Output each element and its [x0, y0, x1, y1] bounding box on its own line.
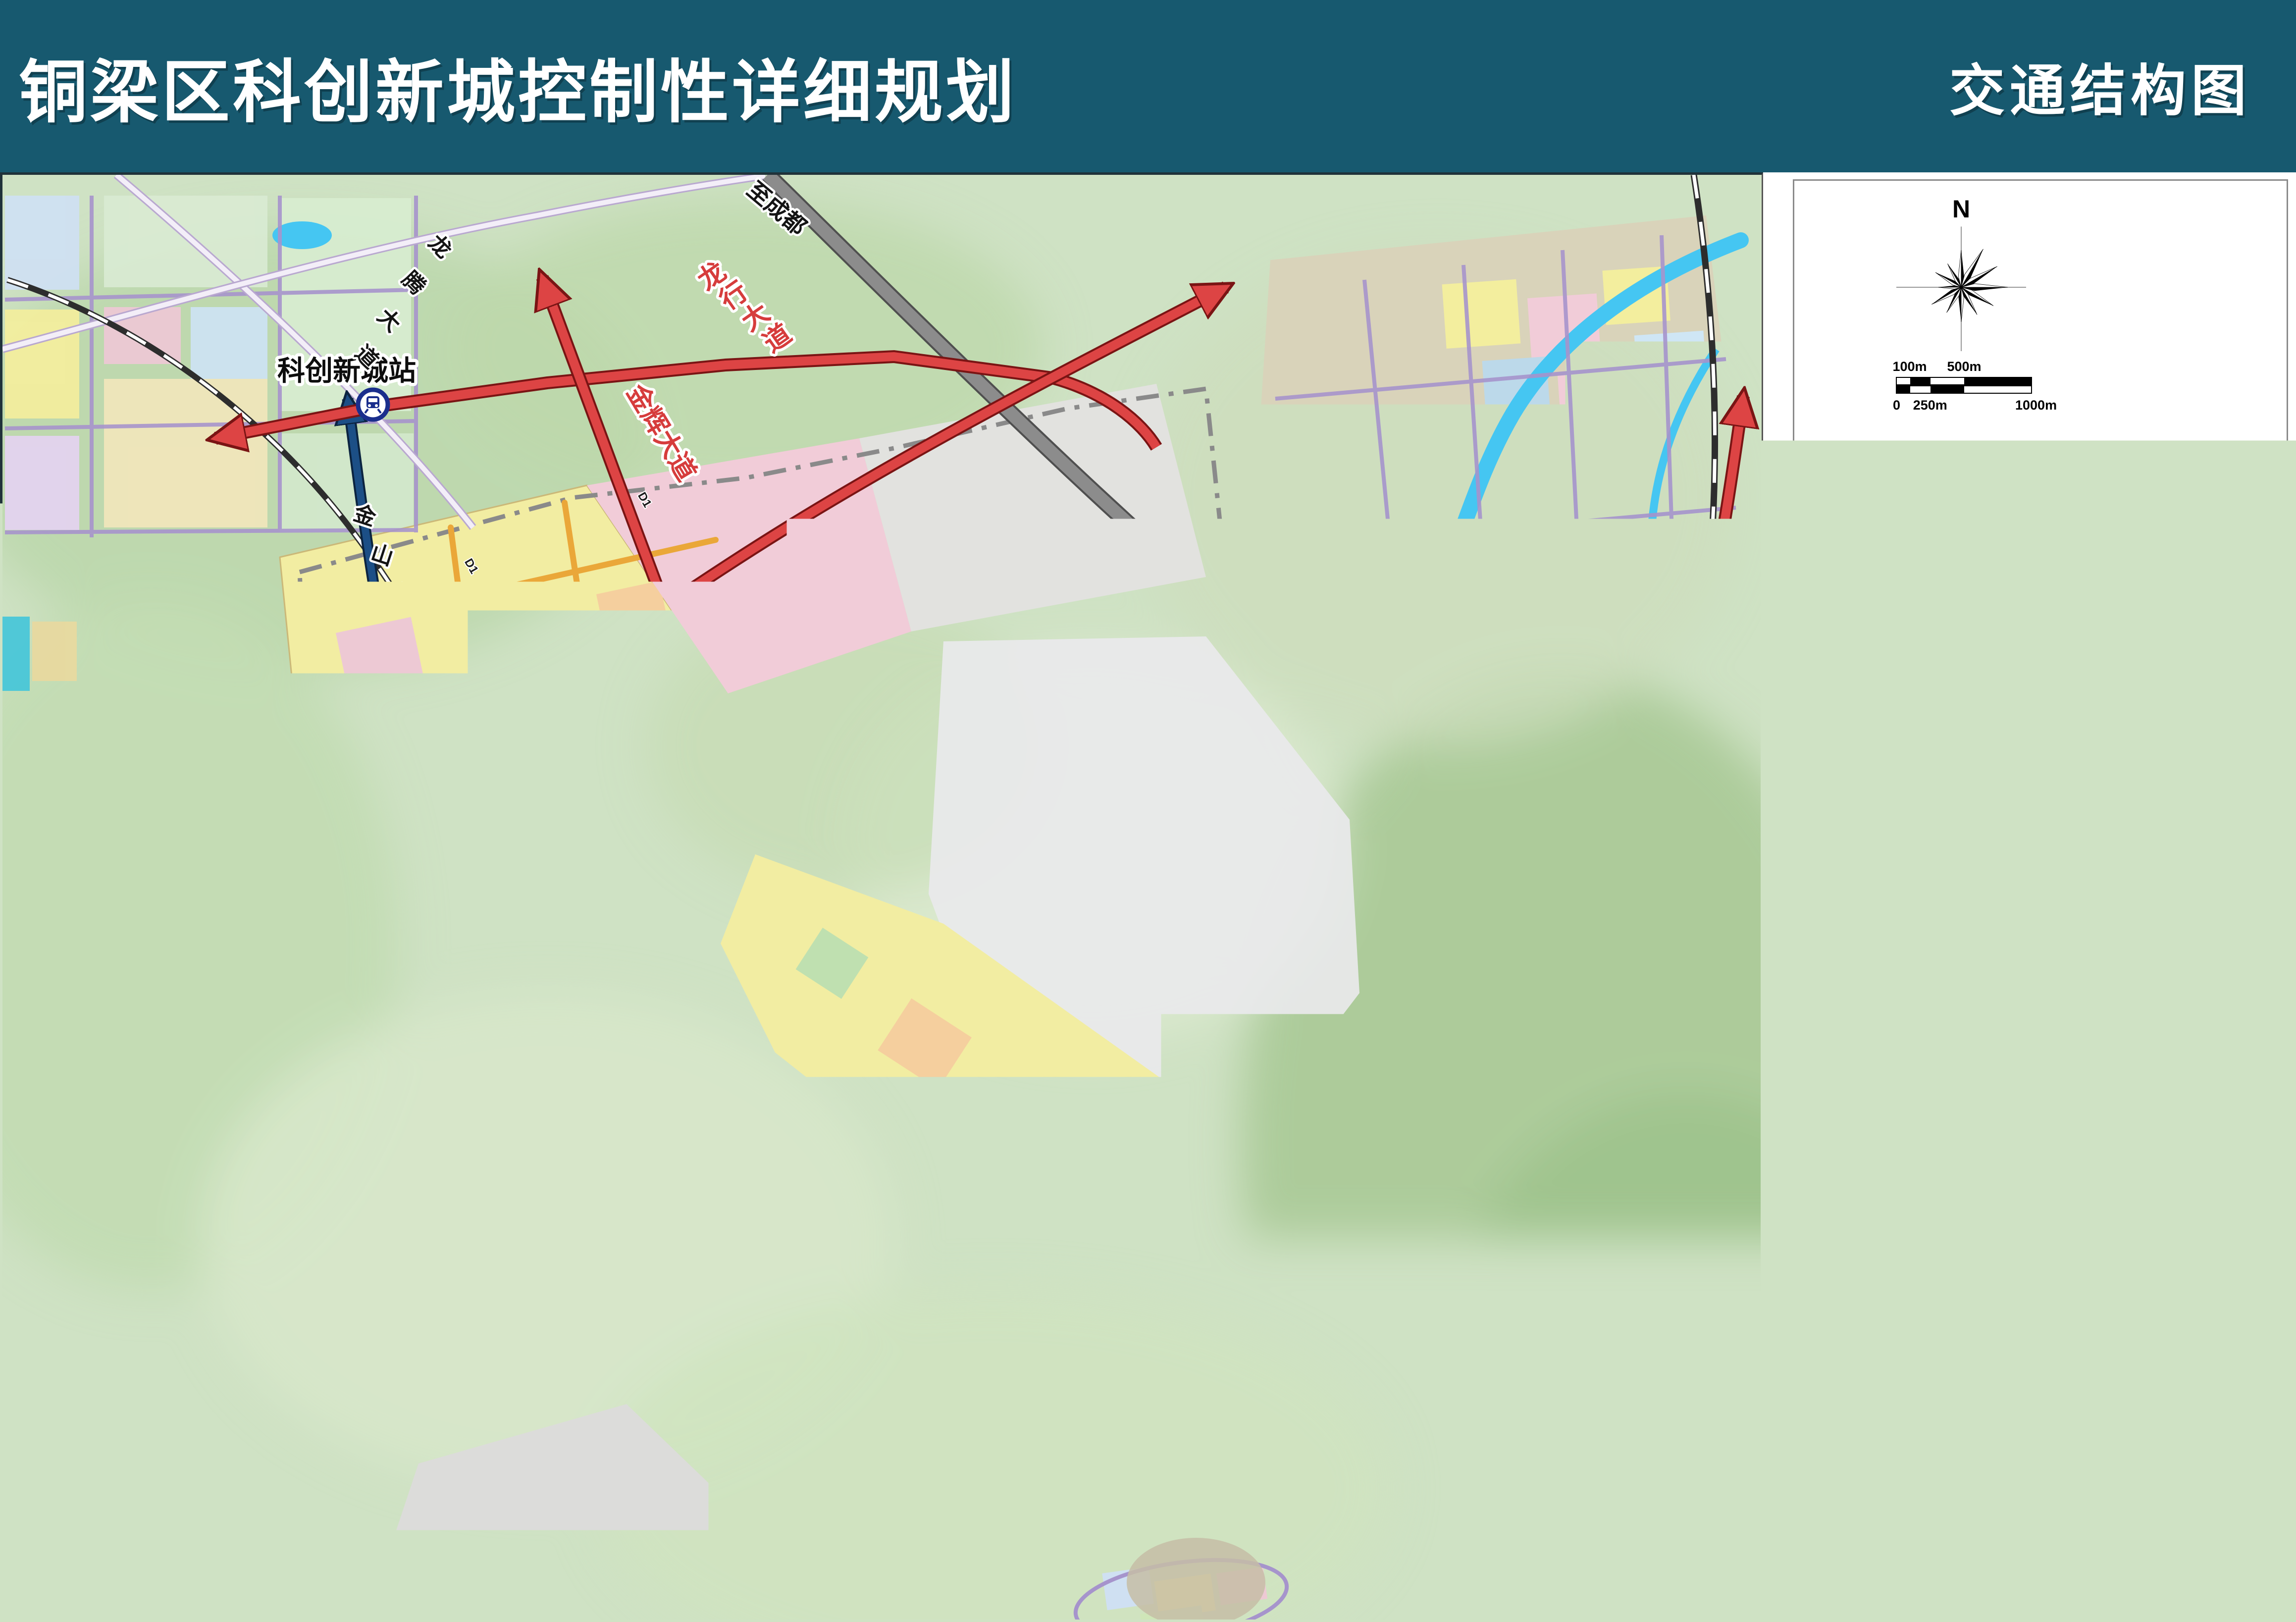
metro-station-icon[interactable] [1216, 1315, 1246, 1345]
compass-box: N 100m500m0250m1000m [1793, 179, 2288, 566]
scale-bar-row [1896, 385, 2032, 394]
legend-swatch-line-red [1792, 747, 1838, 771]
svg-text:18: 18 [2024, 1335, 2034, 1345]
map-label-char: 道 [1538, 710, 1560, 734]
header-bar: 铜梁区科创新城控制性详细规划 交通结构图 [0, 0, 2296, 172]
legend-item: 支路 [1792, 784, 1933, 819]
svg-text:15: 15 [1863, 1323, 1873, 1333]
map-label: 至安岳 [60, 1079, 138, 1108]
svg-text:28: 28 [2137, 964, 2150, 978]
map-label: 同康湖 [662, 1355, 754, 1383]
svg-text:3: 3 [1975, 1323, 1980, 1333]
scale-bar: 100m500m0250m1000m [1896, 359, 2044, 423]
map-label: 石鱼场镇 [81, 1549, 200, 1575]
svg-text:10: 10 [2186, 1323, 2195, 1333]
cross-section-D1-D1: 4.5234.532D1-D1道路横断面 [2025, 1045, 2262, 1168]
legend-item: 规划范围 [1792, 699, 1933, 733]
cross-section-D2-D2: 816832D2-D2道路横断面 [1787, 1168, 2025, 1292]
cross-sections: 道路横断面 13.52313.550A-A道路横断面628640B-B道路横断面… [1787, 861, 2287, 1411]
cross-section-F2-F2: 410418F2-F2道路横断面 [2110, 1292, 2271, 1411]
svg-text:32: 32 [2137, 1104, 2150, 1118]
map-label-char: 机 [198, 1493, 223, 1520]
svg-text:50: 50 [1899, 980, 1913, 994]
map-label: 大学园站 [1180, 1393, 1291, 1424]
svg-text:3: 3 [2078, 1323, 2083, 1333]
map-label-char: 线 [1543, 1065, 1564, 1089]
map-label-char: 高 [858, 639, 890, 675]
map-label-char: 铜 [739, 756, 771, 792]
svg-text:40: 40 [2137, 980, 2150, 994]
svg-text:3: 3 [2064, 1212, 2071, 1226]
map-label-char: 大 [1536, 684, 1558, 709]
map-label-char: 第 [192, 1436, 217, 1463]
legend-swatch-line-gray [1933, 704, 1980, 728]
svg-text:23: 23 [1899, 1088, 1913, 1102]
map-label-char: 山 [1533, 659, 1555, 683]
svg-text:18: 18 [2137, 1212, 2150, 1226]
svg-text:4.5: 4.5 [2209, 1088, 2227, 1102]
legend-label: 次干路 [1988, 741, 2059, 776]
cross-section-name: D2-D2道路横断面 [1787, 1259, 2025, 1285]
page-title: 铜梁区科创新城控制性详细规划 [19, 37, 1017, 136]
map-label-char: 环 [1577, 1021, 1598, 1044]
page-subtitle: 交通结构图 [1949, 46, 2251, 126]
map-label-char: 铁 [1693, 810, 1714, 833]
svg-text:13.5: 13.5 [1830, 964, 1855, 978]
map-label: 庆隆场镇 [1061, 1378, 1184, 1406]
map-label-char: 高 [115, 1465, 140, 1492]
scale-label: 250m [1913, 398, 1947, 413]
svg-text:24: 24 [2137, 1228, 2150, 1242]
scale-bar-row [1896, 377, 2032, 385]
svg-text:13.5: 13.5 [1957, 964, 1981, 978]
svg-text:16: 16 [1899, 1212, 1913, 1226]
legend-item: 高速公路 [1933, 699, 2075, 733]
legend-label: 规划范围 [1846, 699, 1941, 733]
map-label-char: 龙 [1531, 633, 1553, 657]
map-label-char: 遂 [1285, 790, 1321, 829]
map-label: 顺安爆破企业 [1123, 1591, 1289, 1617]
legend-item: A-A断面符号 [1933, 784, 2075, 819]
scale-label: 100m [1893, 359, 1927, 374]
map-label-char: 速 [918, 581, 949, 617]
legend-item: 主干路 [1792, 741, 1933, 776]
cross-section-name: E1-E1道路横断面 [2025, 1259, 2262, 1285]
map-canvas[interactable]: 至成都金辉大道科创新城站黎家沟水库金川大道至安岳金岳大道成渝中线高铁（渝遂绵高铁… [0, 172, 1763, 1622]
map-label-char: 二 [1612, 976, 1632, 999]
scale-label: 0 [1893, 398, 1900, 413]
map-label-char: 铜 [119, 1408, 144, 1435]
cross-section-name: C-C道路横断面 [1787, 1136, 2025, 1161]
legend-label: 支路 [1846, 784, 1894, 819]
north-label: N [1894, 195, 2028, 223]
map-label-char: 安 [799, 698, 831, 733]
map-label-char: 至 [189, 1407, 214, 1434]
map-label-char: 渝 [1268, 697, 1304, 736]
cross-section-A-A: 13.52313.550A-A道路横断面 [1787, 921, 2025, 1045]
legend-label: 断面符号 [1988, 784, 2083, 819]
legend-swatch-section-symbol: A-A [1933, 789, 1980, 813]
svg-text:4.5: 4.5 [1811, 1323, 1824, 1333]
map-label-char: 路 [1682, 848, 1703, 872]
planning-map[interactable]: 至成都金辉大道科创新城站黎家沟水库金川大道至安岳金岳大道成渝中线高铁（渝遂绵高铁… [2, 175, 1761, 1620]
cross-section-name: A-A道路横断面 [1787, 1012, 2025, 1038]
legend-label: 高速公路 [1988, 699, 2083, 733]
svg-text:32: 32 [1899, 1228, 1913, 1242]
scale-label: 1000m [2015, 398, 2057, 413]
legend-item: 次干路 [1933, 741, 2075, 776]
svg-text:36: 36 [1899, 1104, 1913, 1118]
legend-swatch-line-orange [1792, 789, 1838, 813]
svg-text:4: 4 [2236, 1323, 2241, 1333]
legend-swatch-dash-red [1792, 704, 1838, 728]
road-section-tag: F2 [963, 1074, 979, 1090]
map-label: 青 [1649, 1478, 1694, 1529]
svg-text:6: 6 [2066, 964, 2073, 978]
cross-section-E2-E2: 4.5154.524E2-E2道路横断面 [1787, 1292, 1948, 1411]
map-label-char: 速 [1318, 974, 1355, 1013]
cross-section-C-C: 6.5236.536C-C道路横断面 [1787, 1045, 2025, 1168]
svg-text:4: 4 [2140, 1323, 2145, 1333]
metro-station-icon[interactable] [358, 390, 388, 419]
cross-section-F1-F1: 312318F1-F1道路横断面 [1948, 1292, 2110, 1411]
cross-section-name: E2-E2道路横断面 [1787, 1357, 1948, 1378]
legend-title: 图 例 [1792, 608, 2089, 658]
svg-text:24: 24 [1863, 1335, 1873, 1345]
svg-text:6.5: 6.5 [1826, 1088, 1843, 1102]
map-label-char: 域 [1701, 771, 1722, 794]
svg-text:6: 6 [2214, 964, 2221, 978]
map-label-char: 场 [201, 1522, 226, 1549]
svg-text:23: 23 [1899, 964, 1913, 978]
map-label-char: 西 [1668, 887, 1689, 910]
cross-section-name: F1-F1道路横断面 [1948, 1357, 2110, 1378]
cross-sections-title: 道路横断面 [1787, 861, 2287, 901]
highway-exit-marker [1445, 759, 1467, 781]
cross-section-name: D1-D1道路横断面 [2025, 1136, 2262, 1161]
svg-text:12: 12 [2024, 1323, 2034, 1333]
compass-rose-icon [1894, 220, 2028, 354]
map-label: 山 [1452, 1541, 1497, 1591]
svg-text:3: 3 [2216, 1212, 2223, 1226]
map-label-char: 速 [113, 1493, 138, 1520]
legend: 图 例 规划范围主干路支路高速公路次干路A-A断面符号 [1792, 608, 2089, 823]
page: 铜梁区科创新城控制性详细规划 交通结构图 [0, 0, 2296, 1622]
map-label: 铜梁高铁站 [473, 1436, 612, 1467]
svg-text:18: 18 [2186, 1335, 2195, 1345]
cross-section-B-B: 628640B-B道路横断面 [2025, 921, 2262, 1045]
scale-label: 500m [1947, 359, 1982, 374]
legend-label: 主干路 [1846, 741, 1918, 776]
svg-text:6.5: 6.5 [1968, 1088, 1985, 1102]
map-label-char: 兴 [117, 1436, 142, 1464]
legend-swatch-line-blue [1933, 747, 1980, 771]
svg-text:23: 23 [2137, 1088, 2150, 1102]
svg-text:8: 8 [1967, 1212, 1974, 1226]
cross-section-name: F2-F2道路横断面 [2110, 1357, 2271, 1378]
cross-section-name: B-B道路横断面 [2025, 1012, 2262, 1038]
map-label: 科创新城站 [277, 355, 416, 386]
map-label-char: 高 [1302, 883, 1338, 922]
svg-text:4.5: 4.5 [1912, 1323, 1924, 1333]
svg-text:4.5: 4.5 [2060, 1088, 2078, 1102]
side-panel: N 100m500m0250m1000m 图 例 规划范围主干路支路高速公路次干… [1767, 172, 2296, 1622]
map-label: 黎家沟水库 [328, 774, 481, 800]
map-label-char: 二 [195, 1465, 220, 1492]
svg-text:8: 8 [1837, 1212, 1844, 1226]
map-label-char: 市 [1706, 733, 1726, 756]
cross-section-E1-E1: 318324E1-E1道路横断面 [2025, 1168, 2262, 1292]
map-label: 毓 [1756, 1178, 1761, 1228]
